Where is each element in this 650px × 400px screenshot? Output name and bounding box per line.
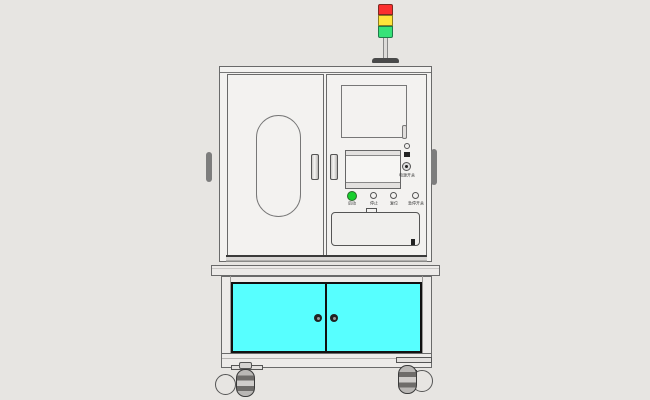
reset-button <box>390 192 397 199</box>
hmi-screen <box>345 150 401 189</box>
tower-light <box>371 3 401 67</box>
estop-button <box>412 192 419 199</box>
access-panel <box>331 212 420 246</box>
left-door-knob-center <box>317 317 320 320</box>
rocker-switch <box>404 152 410 157</box>
hmi-bottom-bezel <box>346 182 400 188</box>
side-handle-left <box>206 152 212 182</box>
right-door-knob <box>330 314 338 322</box>
left-door-window <box>256 115 301 217</box>
tower-light-green-lamp <box>378 26 393 38</box>
estop-button-label: 急停开关 <box>405 202 427 206</box>
upper-cabinet-bottom-band <box>226 255 427 262</box>
tower-light-pole <box>383 38 388 60</box>
caster-left-swivel-ring <box>215 374 236 395</box>
caster-left-wheel <box>236 369 255 397</box>
indicator-lamp <box>404 143 410 149</box>
caster-right <box>392 355 442 397</box>
mid-ledge <box>211 265 440 276</box>
right-door-handle <box>330 154 338 180</box>
access-panel-lock <box>411 239 415 245</box>
upper-cabinet-top-rail <box>220 67 431 73</box>
upper-window-handle <box>402 125 407 139</box>
caster-left <box>212 360 262 400</box>
tower-light-red-lamp <box>378 4 393 15</box>
side-handle-right <box>431 149 437 185</box>
tower-light-yellow-lamp <box>378 15 393 26</box>
stop-button-label: 停止 <box>366 202 382 206</box>
machine-illustration: 电源开关 启动 停止 复位 急停开关 <box>0 0 650 400</box>
power-key-switch <box>402 162 411 171</box>
hmi-top-bezel <box>346 151 400 156</box>
left-door-handle <box>311 154 319 180</box>
mid-ledge-line <box>212 268 439 269</box>
left-door-knob <box>314 314 322 322</box>
start-button-label: 启动 <box>344 202 360 206</box>
right-door-knob-center <box>333 317 336 320</box>
tower-light-base <box>372 58 399 63</box>
power-switch-label: 电源开关 <box>395 174 419 178</box>
upper-window <box>341 85 407 138</box>
caster-right-bracket <box>396 357 432 363</box>
caster-left-cap <box>239 362 252 369</box>
start-button <box>347 191 357 201</box>
caster-right-wheel <box>398 365 417 394</box>
stop-button <box>370 192 377 199</box>
power-key-slot <box>405 165 408 168</box>
reset-button-label: 复位 <box>386 202 402 206</box>
lower-door-divider <box>325 282 327 353</box>
